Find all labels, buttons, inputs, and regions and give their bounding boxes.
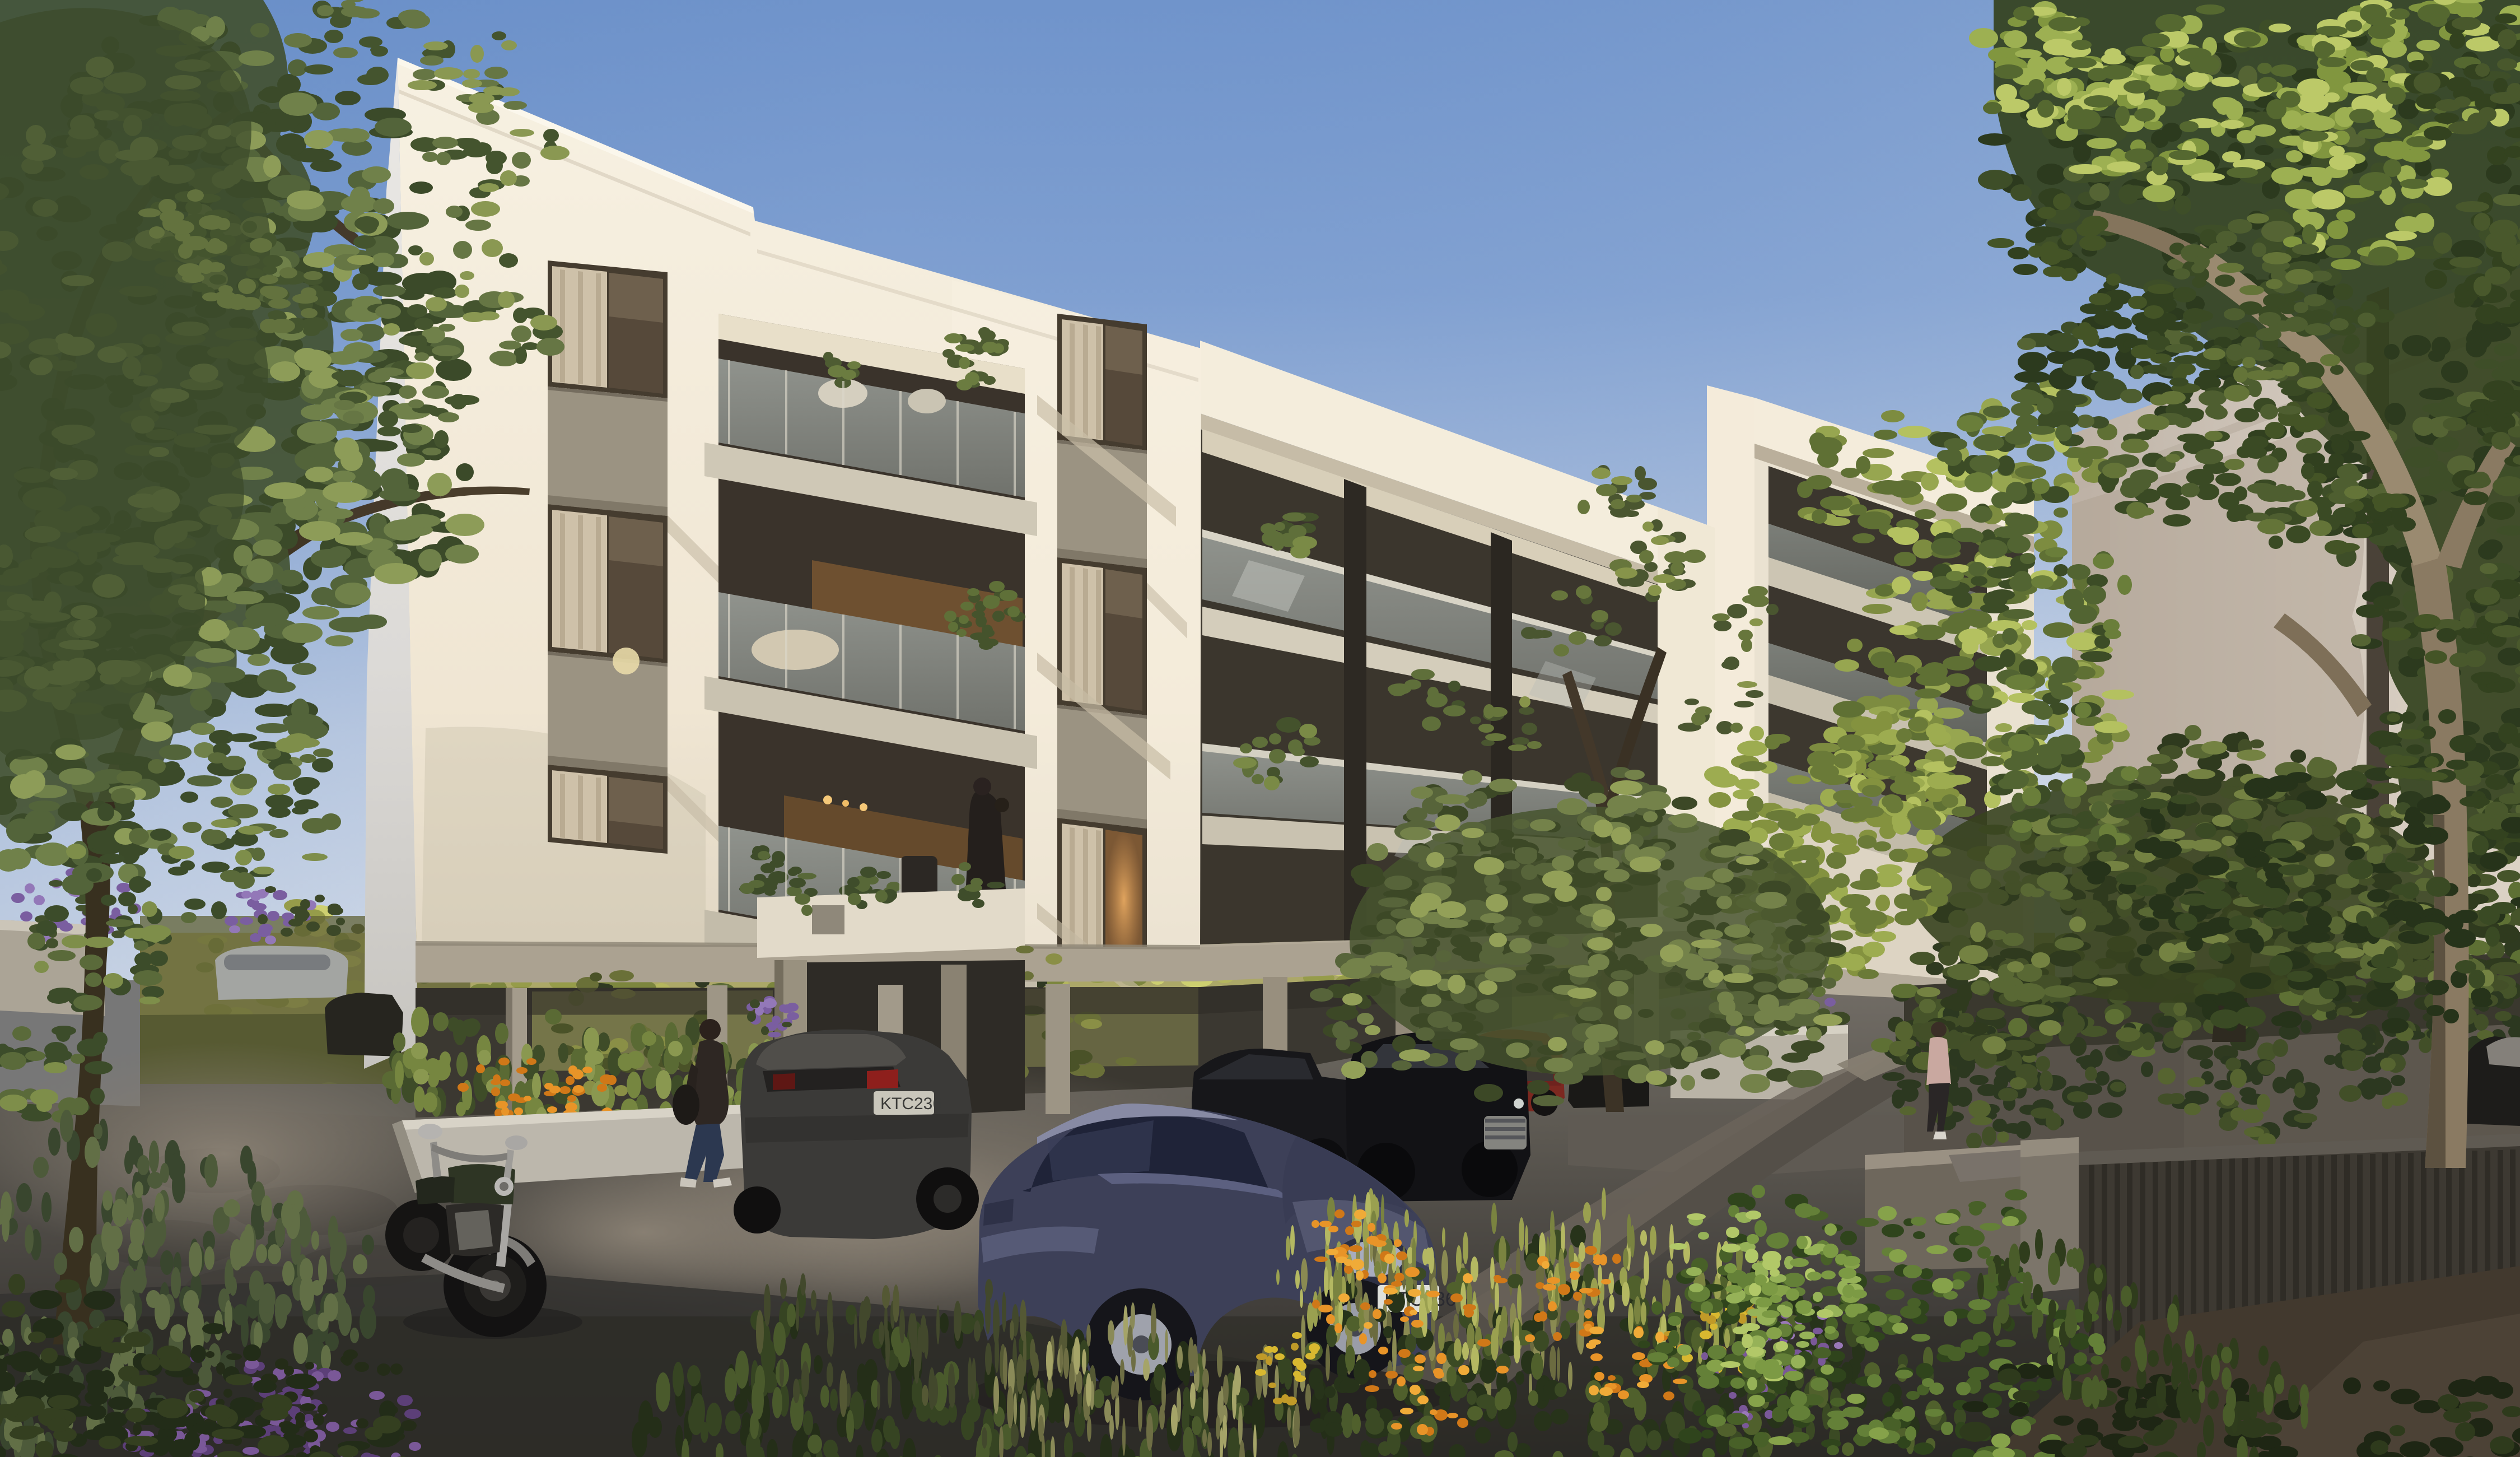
svg-text:KTC236: KTC236 xyxy=(880,1095,942,1113)
